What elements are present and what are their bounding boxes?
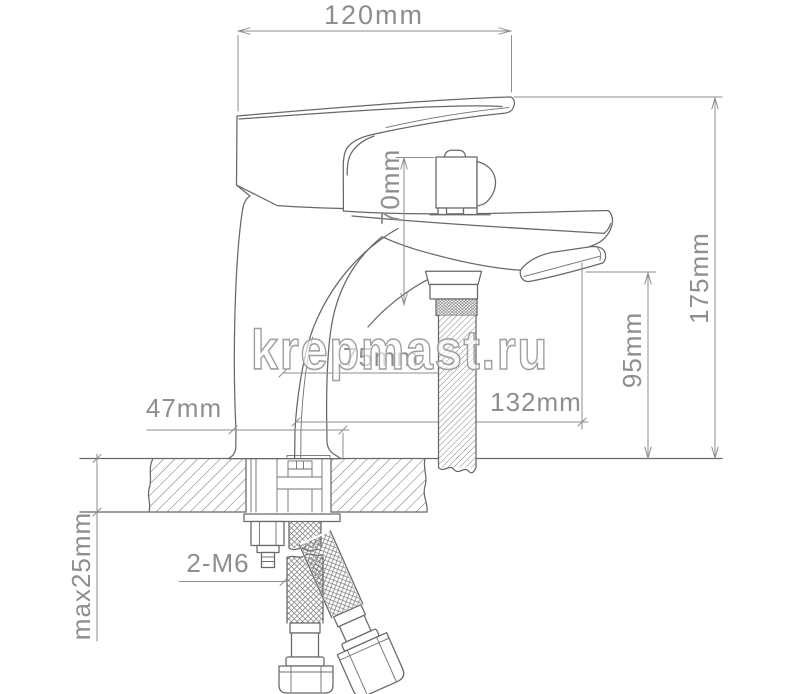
faucet-technical-drawing: 120mm 70mm 175mm 95mm 132mm 75m <box>0 0 800 694</box>
dim-label-outlet-height: 95mm <box>617 312 647 388</box>
faucet-shank-section <box>251 459 322 513</box>
knurled-ring <box>436 299 477 316</box>
dim-label-reach: 132mm <box>490 387 582 417</box>
drawing-canvas: 120mm 70mm 175mm 95mm 132mm 75m <box>0 0 800 694</box>
stud-break-line <box>439 468 477 473</box>
watermark-text: krepmast.ru <box>251 318 549 381</box>
mounting-washer-plate <box>244 514 340 522</box>
hose-nut <box>279 666 333 693</box>
slab-hatch-right <box>331 459 427 513</box>
mounting-hardware <box>244 514 407 694</box>
cartridge-side <box>477 162 496 207</box>
dim-label-base-width: 47mm <box>146 393 222 423</box>
dimension-thread <box>179 578 288 586</box>
dim-label-deck-thickness: max25mm <box>66 512 96 640</box>
dim-label-top-width: 120mm <box>324 0 424 30</box>
mounting-stud <box>251 522 284 568</box>
cartridge-dome <box>445 150 466 157</box>
dim-label-total-height: 175mm <box>684 232 714 324</box>
dim-label-70: 70mm <box>375 149 405 225</box>
cartridge <box>430 150 496 215</box>
dim-label-thread: 2-M6 <box>186 548 249 578</box>
slab-hatch-left <box>149 459 246 513</box>
countertop-section <box>80 459 722 513</box>
hose-ferrule <box>290 623 320 633</box>
